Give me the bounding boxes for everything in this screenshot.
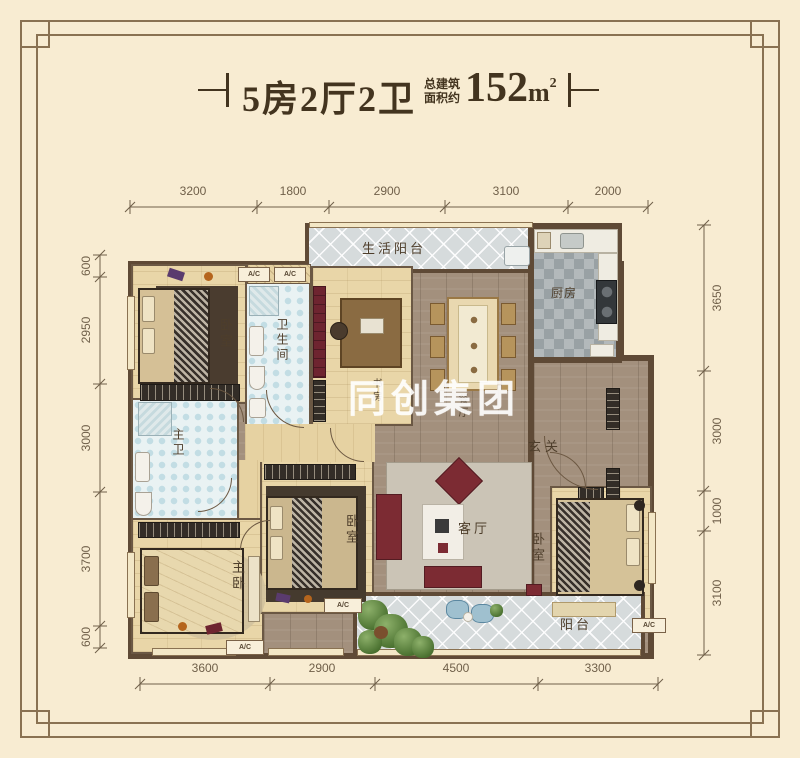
ac-label: A/C xyxy=(284,271,296,278)
bed-master-pillow-2 xyxy=(144,592,159,622)
ac-unit-middle: A/C xyxy=(324,598,362,613)
dining-chair-5 xyxy=(501,336,516,358)
label-kitchen: 厨房 xyxy=(551,284,577,301)
dim-top-2: 1800 xyxy=(280,184,307,198)
dining-chair-2 xyxy=(430,336,445,358)
ac-label: A/C xyxy=(248,271,260,278)
decor-dot-middle xyxy=(304,595,312,603)
ac-label: A/C xyxy=(239,644,251,651)
dim-top-3: 2900 xyxy=(374,184,401,198)
toilet-bathroom xyxy=(249,366,265,390)
label-foyer: 玄关 xyxy=(528,436,562,455)
ac-unit-right: A/C xyxy=(632,618,666,633)
desk-paper xyxy=(360,318,384,334)
ac-label: A/C xyxy=(643,622,655,629)
label-bedroom-right: 卧室 xyxy=(528,532,547,564)
shower-master-bath xyxy=(138,402,172,436)
cabinet-study xyxy=(313,380,326,422)
coffee-table-tray xyxy=(435,519,449,533)
window-midbed-bottom xyxy=(268,648,344,656)
decor-dot-bedroom1 xyxy=(204,272,213,281)
bed-middle-pillow-1 xyxy=(270,506,283,530)
living-sofa-left xyxy=(376,494,402,560)
floorplan-page: 5房2厅2卫 总建筑 面积约 152m2 xyxy=(0,0,800,758)
kitchen-cart xyxy=(590,344,614,357)
dim-left-5: 600 xyxy=(79,627,93,647)
dim-left-1: 600 xyxy=(79,256,93,276)
dim-right-4: 3100 xyxy=(710,580,724,607)
dresser-master xyxy=(138,522,240,538)
balcony-plant-pot xyxy=(374,626,388,639)
dim-left-4: 3700 xyxy=(79,546,93,573)
ac-label: A/C xyxy=(337,602,349,609)
dim-right-1: 3650 xyxy=(710,285,724,312)
watermark: 同创集团 xyxy=(348,368,520,423)
foyer-cabinet-1 xyxy=(606,388,620,430)
bed-bedroom1-pillow-2 xyxy=(142,328,155,354)
ac-unit-top-1: A/C xyxy=(238,267,270,282)
kitchen-stove xyxy=(596,280,617,324)
label-master-bath: 主卫 xyxy=(170,428,187,458)
dim-top-5: 2000 xyxy=(595,184,622,198)
desk-study xyxy=(340,298,402,368)
bed-master-pillow-1 xyxy=(144,556,159,586)
dim-bottom-1: 3600 xyxy=(192,661,219,675)
ac-unit-master: A/C xyxy=(226,640,264,655)
dim-right-3: 1000 xyxy=(710,498,724,525)
bookcase-study xyxy=(313,286,326,378)
ac-unit-top-2: A/C xyxy=(274,267,306,282)
wardrobe-bedroom-middle xyxy=(264,464,356,480)
decor-dot-master xyxy=(178,622,187,631)
balcony-top-basin xyxy=(504,246,530,266)
label-balcony: 阳台 xyxy=(560,614,592,633)
window-master-bottom xyxy=(152,648,236,656)
chair-study xyxy=(330,322,348,340)
window-bedroom1-left xyxy=(127,296,135,370)
window-master-left xyxy=(127,552,135,618)
dim-right-2: 3000 xyxy=(710,418,724,445)
bed-right-quilt xyxy=(558,502,590,592)
dining-chair-4 xyxy=(501,303,516,325)
bed-bedroom-right xyxy=(556,498,644,596)
toilet-master-bath xyxy=(135,492,152,516)
dining-chair-1 xyxy=(430,303,445,325)
living-side-table xyxy=(526,584,542,596)
kitchen-sink xyxy=(560,233,584,249)
bed-bedroom1-pillow-1 xyxy=(142,296,155,322)
sink-bathroom xyxy=(249,326,264,356)
balcony-sprig xyxy=(490,604,503,617)
bed-middle-quilt xyxy=(292,498,322,588)
coffee-table-box xyxy=(438,543,448,553)
dim-bottom-3: 4500 xyxy=(443,661,470,675)
bed-bedroom1 xyxy=(138,288,210,384)
kitchen-small-appliance xyxy=(537,232,551,249)
balcony-plant-4 xyxy=(412,636,434,658)
nightstand-right-2 xyxy=(634,580,645,591)
shower-bathroom xyxy=(249,286,279,316)
nightstand-right-1 xyxy=(634,500,645,511)
label-living-room: 客厅 xyxy=(458,518,490,537)
hallway-2 xyxy=(239,460,260,518)
bed-right-pillow-2 xyxy=(626,538,640,566)
dim-top-4: 3100 xyxy=(493,184,520,198)
dim-bottom-4: 3300 xyxy=(585,661,612,675)
balcony-rail-top xyxy=(309,222,533,228)
balcony-ball xyxy=(463,612,473,622)
dim-left-3: 3000 xyxy=(79,425,93,452)
bed-bedroom1-quilt xyxy=(174,290,208,382)
sink-master-bath xyxy=(135,452,150,482)
label-living-balcony: 生活阳台 xyxy=(362,238,426,257)
dim-bottom-2: 2900 xyxy=(309,661,336,675)
bed-middle-pillow-2 xyxy=(270,536,283,560)
label-bedroom-middle: 卧室 xyxy=(342,514,361,546)
dim-top-1: 3200 xyxy=(180,184,207,198)
bench-master xyxy=(248,556,260,622)
label-bedroom-top-left: 卧室 xyxy=(216,318,235,350)
label-master-bedroom: 主卧 xyxy=(228,560,247,592)
washer-bathroom xyxy=(249,398,266,418)
living-sofa-bottom xyxy=(424,566,482,588)
label-bathroom: 卫生间 xyxy=(274,318,291,363)
window-bedright-right xyxy=(648,512,656,584)
dim-left-2: 2950 xyxy=(79,317,93,344)
